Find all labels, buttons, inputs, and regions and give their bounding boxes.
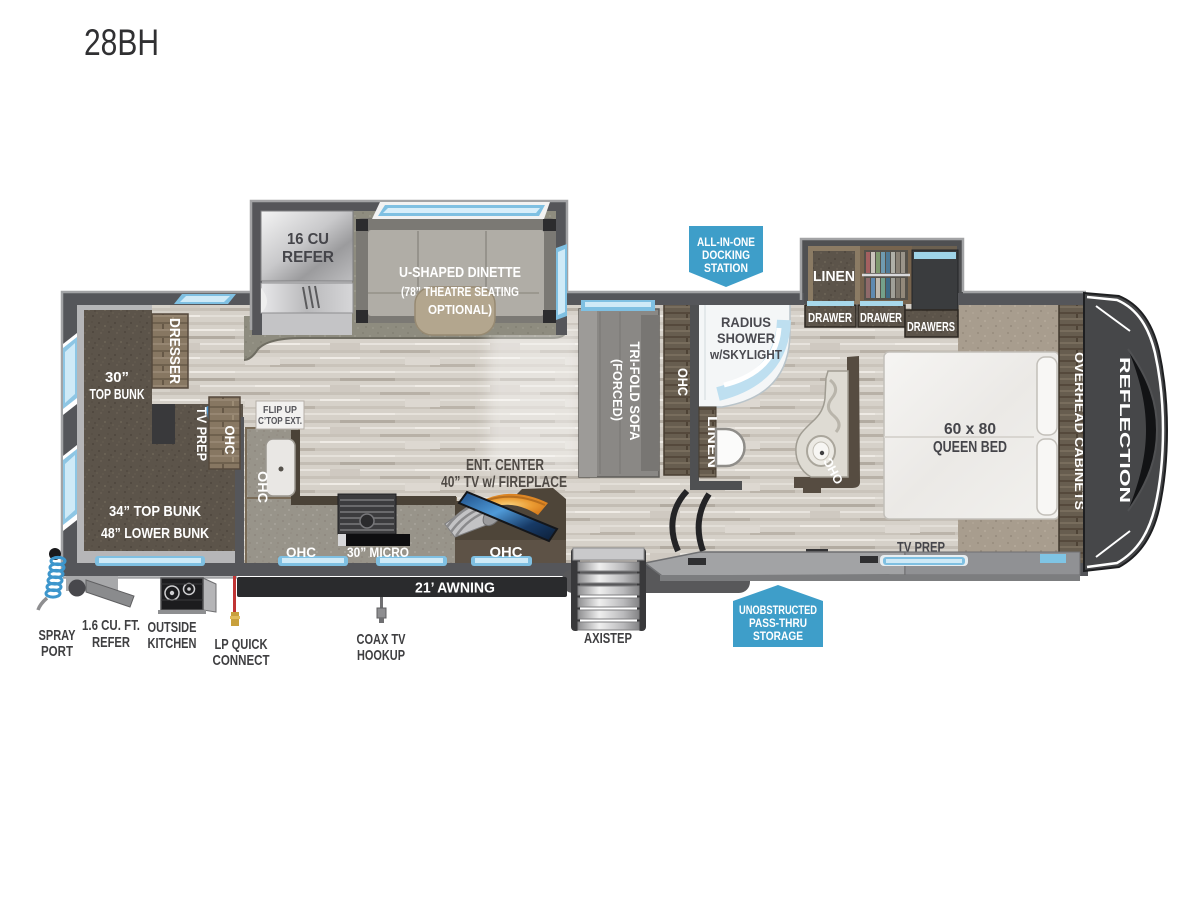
svg-text:LINEN: LINEN: [813, 268, 855, 285]
svg-text:(FORCED): (FORCED): [610, 359, 625, 421]
svg-text:30”: 30”: [105, 369, 129, 386]
svg-text:ENT. CENTER: ENT. CENTER: [466, 457, 544, 474]
svg-text:PASS-THRU: PASS-THRU: [749, 616, 807, 630]
svg-text:U-SHAPED DINETTE: U-SHAPED DINETTE: [399, 264, 521, 281]
svg-text:OHC: OHC: [286, 544, 316, 560]
svg-text:DRAWER: DRAWER: [860, 310, 902, 325]
svg-text:21’ AWNING: 21’ AWNING: [415, 580, 495, 597]
svg-text:ALL-IN-ONE: ALL-IN-ONE: [697, 235, 755, 249]
svg-text:(78” THEATRE SEATING: (78” THEATRE SEATING: [401, 285, 519, 299]
svg-text:HOOKUP: HOOKUP: [357, 647, 405, 664]
svg-text:TOP BUNK: TOP BUNK: [90, 386, 145, 403]
svg-text:C’TOP EXT.: C’TOP EXT.: [258, 416, 302, 427]
svg-text:OHC: OHC: [490, 544, 523, 561]
svg-text:KITCHEN: KITCHEN: [148, 635, 197, 652]
svg-text:TV PREP: TV PREP: [194, 407, 210, 461]
svg-text:OHC: OHC: [222, 426, 238, 455]
svg-text:SHOWER: SHOWER: [717, 330, 775, 346]
svg-text:OHC: OHC: [255, 471, 271, 503]
svg-text:AXISTEP: AXISTEP: [584, 630, 632, 647]
svg-text:STATION: STATION: [704, 261, 748, 275]
svg-text:OUTSIDE: OUTSIDE: [148, 619, 197, 636]
svg-text:DRAWERS: DRAWERS: [907, 319, 955, 334]
svg-text:OPTIONAL): OPTIONAL): [428, 303, 492, 317]
svg-text:REFLECTION: REFLECTION: [1116, 357, 1133, 503]
svg-text:DOCKING: DOCKING: [702, 248, 750, 262]
svg-text:48” LOWER BUNK: 48” LOWER BUNK: [101, 525, 209, 542]
svg-text:UNOBSTRUCTED: UNOBSTRUCTED: [739, 603, 817, 617]
svg-text:COAX TV: COAX TV: [357, 631, 406, 648]
svg-text:RADIUS: RADIUS: [721, 314, 771, 330]
svg-text:1.6 CU. FT.: 1.6 CU. FT.: [82, 617, 140, 634]
svg-text:34” TOP BUNK: 34” TOP BUNK: [109, 503, 201, 520]
svg-text:40” TV w/ FIREPLACE: 40” TV w/ FIREPLACE: [441, 474, 567, 491]
svg-text:DRESSER: DRESSER: [166, 318, 183, 384]
svg-text:PORT: PORT: [41, 643, 73, 660]
svg-text:SPRAY: SPRAY: [39, 627, 76, 644]
svg-text:28BH: 28BH: [84, 22, 159, 63]
svg-text:FLIP UP: FLIP UP: [263, 405, 297, 416]
svg-text:16 CU: 16 CU: [287, 231, 329, 248]
svg-text:TRI-FOLD SOFA: TRI-FOLD SOFA: [627, 342, 643, 441]
svg-text:REFER: REFER: [92, 634, 130, 651]
svg-text:60 x 80: 60 x 80: [944, 421, 996, 438]
svg-text:CONNECT: CONNECT: [213, 652, 270, 669]
svg-text:STORAGE: STORAGE: [753, 629, 803, 643]
svg-text:LP QUICK: LP QUICK: [215, 636, 268, 653]
svg-text:OHC: OHC: [675, 368, 691, 396]
svg-text:30” MICRO: 30” MICRO: [347, 544, 409, 560]
svg-text:REFER: REFER: [282, 249, 334, 266]
svg-text:QUEEN BED: QUEEN BED: [933, 439, 1007, 456]
svg-text:DRAWER: DRAWER: [808, 310, 852, 325]
svg-text:w/SKYLIGHT: w/SKYLIGHT: [709, 347, 782, 362]
